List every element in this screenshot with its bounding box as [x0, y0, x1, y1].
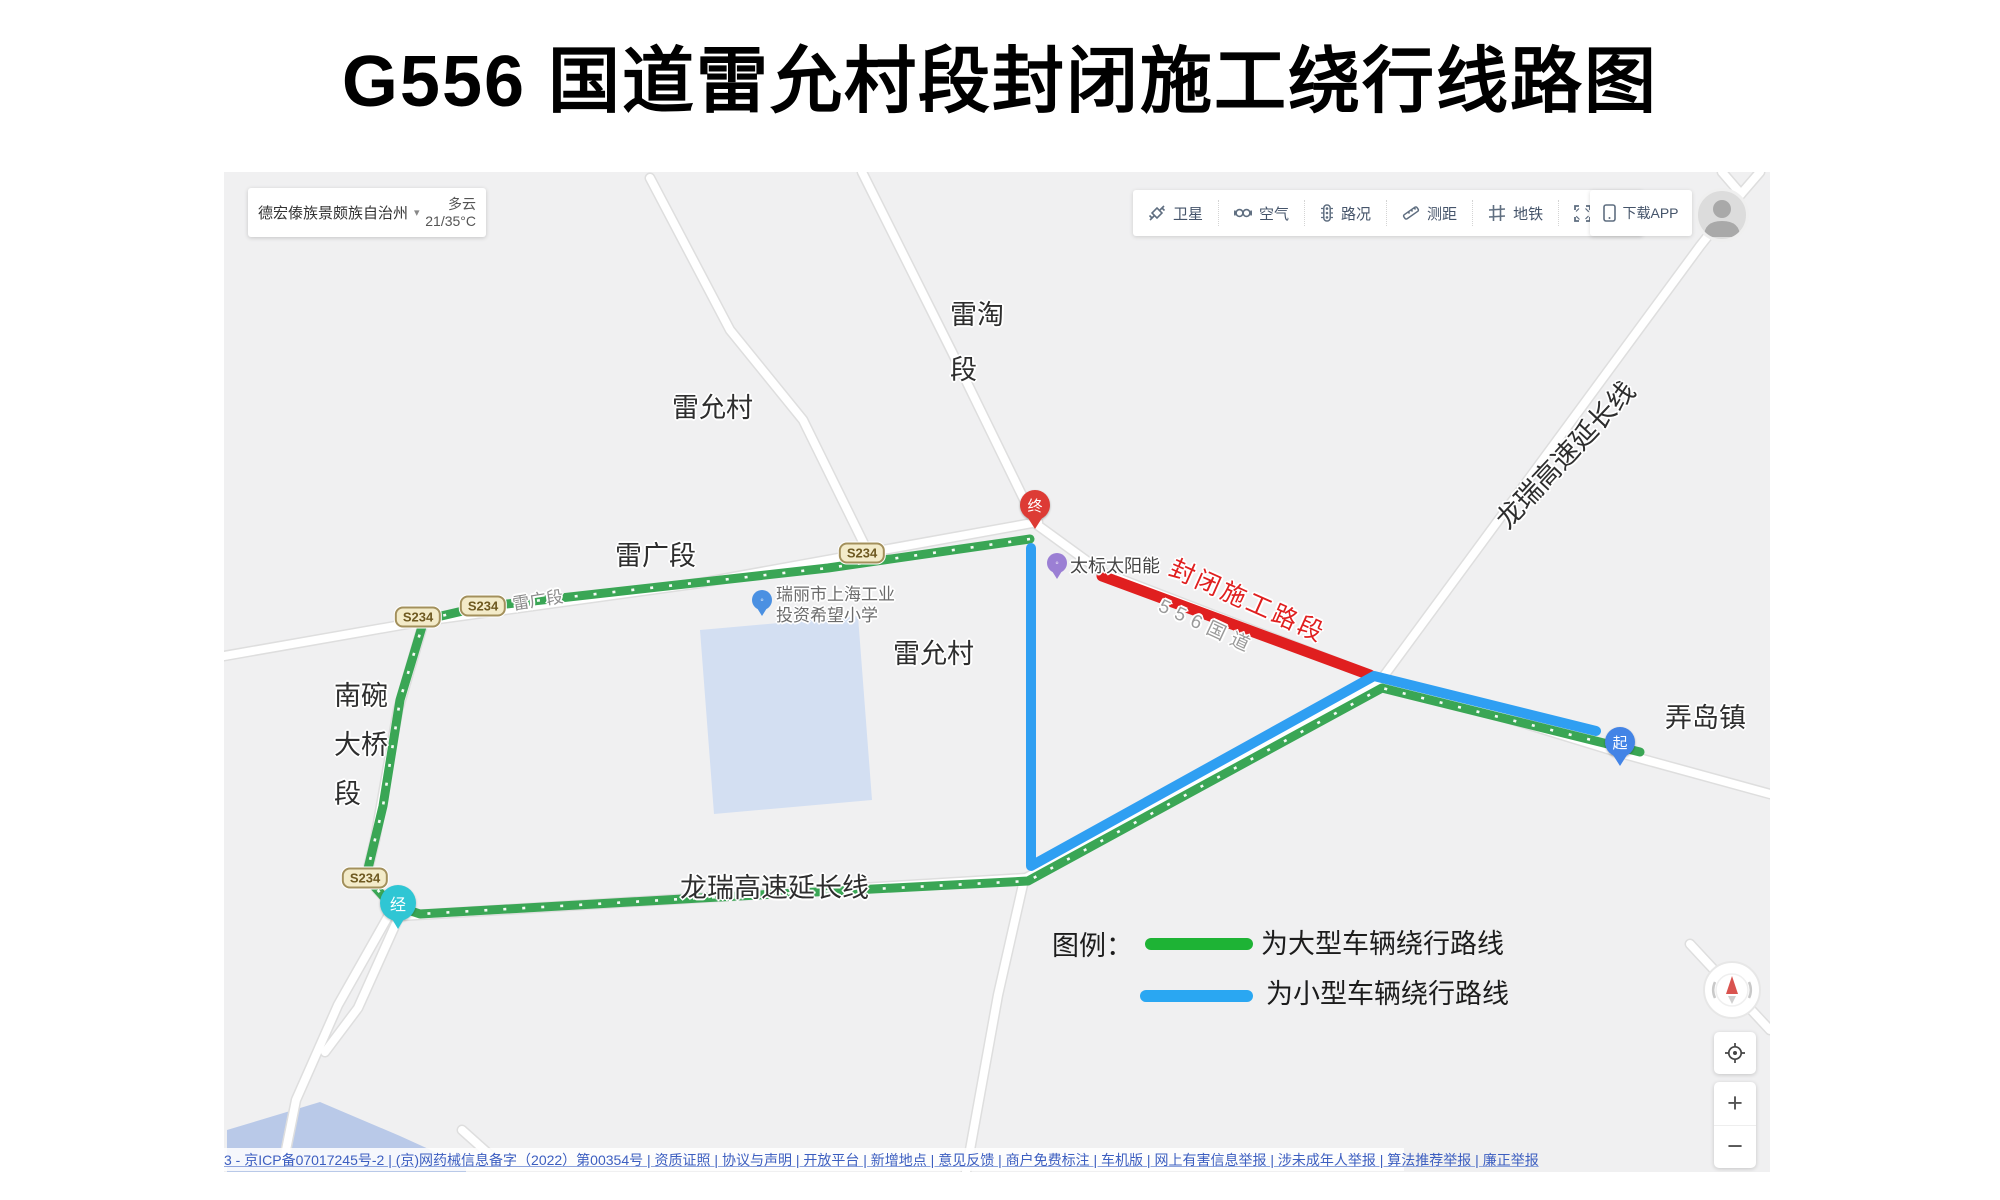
- road-shield-s234: S234: [395, 607, 441, 628]
- weather-temperature: 21/35°C: [425, 213, 476, 229]
- ruler-icon: [1402, 204, 1420, 222]
- footer-copyright-bar: 3 - 京ICP备07017245号-2 | (京)网药械信息备字（2022）第…: [224, 1148, 1404, 1171]
- label-leitao-duan: 雷淘 段: [950, 288, 1004, 398]
- avatar[interactable]: [1695, 188, 1749, 242]
- map-toolbar: 卫星 空气 路况 测距 地铁 全屏: [1133, 190, 1643, 236]
- label-poi-solar: 太标太阳能: [1070, 552, 1160, 578]
- toolbar-metro[interactable]: 地铁: [1472, 200, 1558, 226]
- legend-title: 图例：: [1052, 924, 1133, 963]
- solar-poi-pin[interactable]: ◦: [1047, 553, 1067, 573]
- map-canvas[interactable]: 雷淘 段 雷允村 雷广段 雷广段 雷允村 南碗 大桥 段 龙瑞高速延长线 弄岛镇…: [224, 172, 1770, 1172]
- compass-control[interactable]: [1702, 960, 1762, 1020]
- locate-me-button[interactable]: [1714, 1032, 1756, 1074]
- label-poi-school: 瑞丽市上海工业 投资希望小学: [776, 584, 895, 626]
- label-nongdao: 弄岛镇: [1665, 696, 1746, 735]
- chevron-down-icon[interactable]: ▾: [414, 206, 420, 219]
- traffic-icon: [1320, 204, 1334, 222]
- label-leiyuncun-nw: 雷允村: [672, 386, 753, 425]
- location-selector[interactable]: 德宏傣族景颇族自治州 ▾ 多云 21/35°C: [248, 188, 486, 237]
- phone-icon: [1603, 204, 1616, 222]
- label-nanwan-bridge: 南碗 大桥 段: [334, 672, 388, 819]
- locate-icon: [1724, 1042, 1746, 1064]
- toolbar-satellite[interactable]: 卫星: [1133, 200, 1218, 226]
- label-leiyuncun-center: 雷允村: [893, 632, 974, 671]
- weather-condition: 多云: [448, 196, 476, 212]
- user-icon: [1698, 191, 1746, 239]
- marker-via-pin[interactable]: 经: [380, 885, 416, 921]
- legend-blue-label: 为小型车辆绕行路线: [1266, 972, 1509, 1011]
- air-icon: [1234, 204, 1252, 222]
- legend-green-swatch: [1145, 938, 1253, 950]
- road-shield-s234: S234: [839, 543, 885, 564]
- page: G556 国道雷允村段封闭施工绕行线路图: [0, 0, 2000, 1200]
- road-shield-s234: S234: [342, 868, 388, 889]
- zoom-controls: + −: [1714, 1082, 1756, 1168]
- route-small-vehicles: [1031, 548, 1596, 866]
- metro-icon: [1488, 204, 1506, 222]
- school-campus-area: [700, 616, 872, 814]
- region-name[interactable]: 德宏傣族景颇族自治州: [258, 202, 408, 223]
- compass-icon: [1702, 960, 1762, 1020]
- label-leiguangduan: 雷广段: [615, 534, 696, 573]
- marker-start-pin[interactable]: 起: [1605, 727, 1635, 757]
- school-poi-pin[interactable]: ◦: [752, 590, 772, 610]
- toolbar-ruler[interactable]: 测距: [1386, 200, 1472, 226]
- download-app-button[interactable]: 下载APP: [1590, 190, 1692, 236]
- legend-green-label: 为大型车辆绕行路线: [1261, 922, 1504, 961]
- label-longrui-south: 龙瑞高速延长线: [680, 866, 869, 905]
- fullscreen-icon: [1574, 205, 1591, 222]
- road-shield-s234: S234: [460, 596, 506, 617]
- toolbar-traffic[interactable]: 路况: [1304, 200, 1386, 226]
- satellite-icon: [1148, 204, 1166, 222]
- page-title: G556 国道雷允村段封闭施工绕行线路图: [0, 22, 2000, 127]
- zoom-out-button[interactable]: −: [1714, 1126, 1756, 1169]
- toolbar-air[interactable]: 空气: [1218, 200, 1304, 226]
- marker-end-pin[interactable]: 终: [1020, 490, 1050, 520]
- weather-summary: 多云 21/35°C: [425, 196, 476, 230]
- zoom-in-button[interactable]: +: [1714, 1082, 1756, 1126]
- legend-blue-swatch: [1140, 990, 1253, 1002]
- footer-links[interactable]: 3 - 京ICP备07017245号-2 | (京)网药械信息备字（2022）第…: [224, 1150, 1539, 1170]
